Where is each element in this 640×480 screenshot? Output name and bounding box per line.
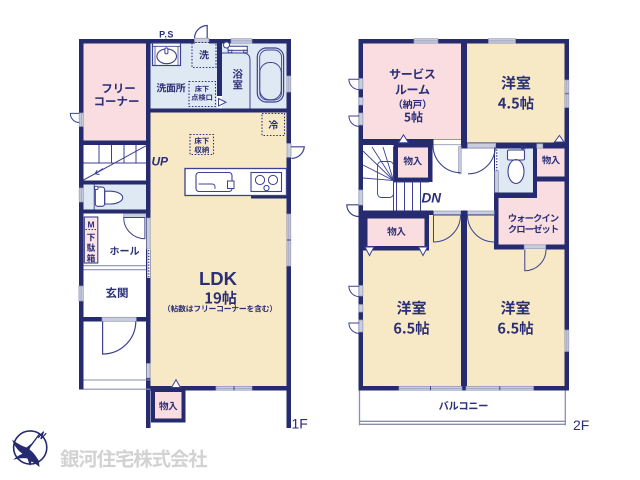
svg-text:UP: UP — [152, 155, 169, 169]
svg-text:LDK: LDK — [199, 268, 238, 289]
svg-text:P.S: P.S — [159, 30, 174, 40]
svg-text:M: M — [87, 220, 94, 230]
svg-text:DN: DN — [422, 191, 442, 206]
svg-text:2F: 2F — [573, 417, 589, 433]
svg-text:1F: 1F — [292, 416, 308, 432]
